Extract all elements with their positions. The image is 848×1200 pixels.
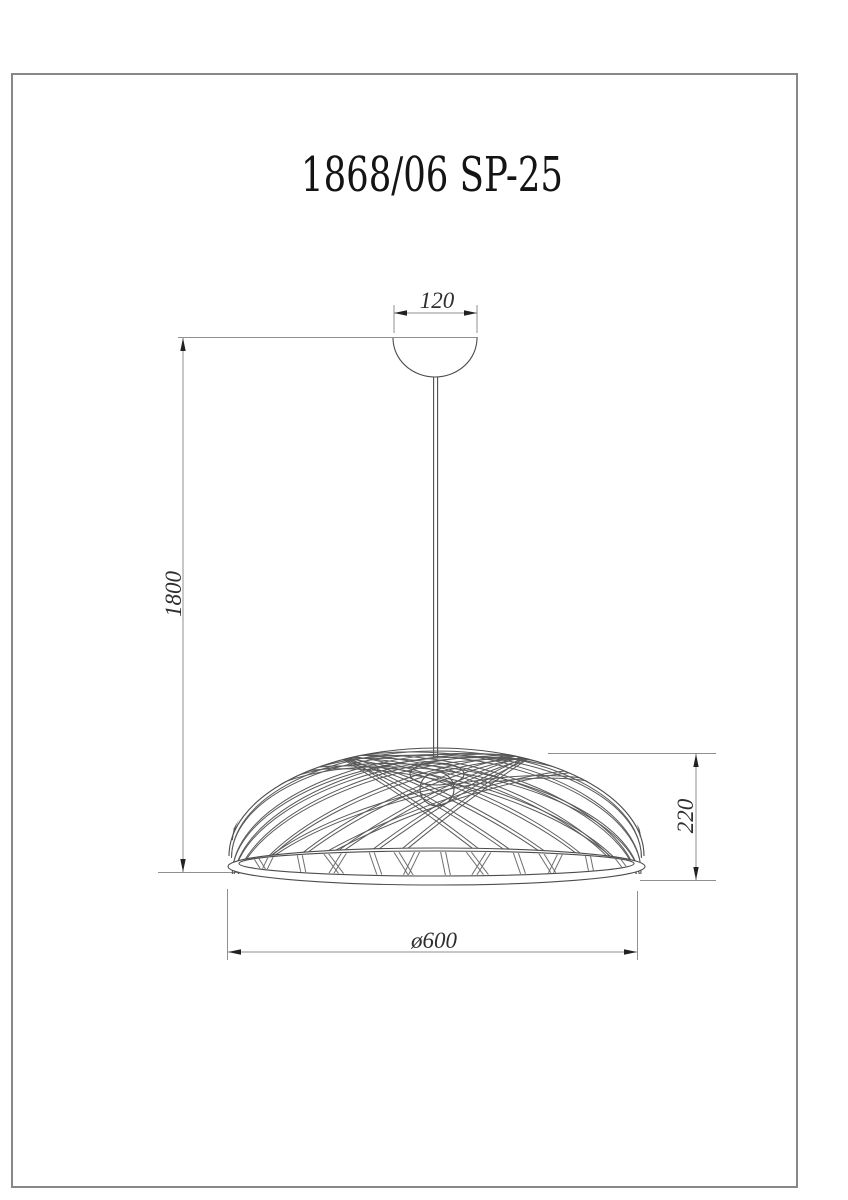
pendant-lamp — [215, 338, 658, 987]
arrow-left-icon — [394, 310, 407, 315]
arrow-down-icon — [693, 867, 698, 880]
shade-rim-outer — [228, 848, 645, 885]
ceiling-canopy — [393, 338, 477, 377]
arrow-up-icon — [180, 338, 185, 351]
dimension-label-cord-drop: 1800 — [161, 571, 186, 618]
arrow-right-icon — [464, 310, 477, 315]
dimension-label-shade-height: 220 — [673, 798, 698, 833]
arrow-left-icon — [228, 949, 241, 954]
arrow-right-icon — [624, 949, 637, 954]
suspension-cord — [434, 377, 438, 757]
technical-drawing: 1868/06 SP-25 120 1800 220 ø600 — [0, 0, 848, 1200]
arrow-down-icon — [180, 859, 185, 872]
dimension-label-canopy-width: 120 — [420, 288, 455, 313]
spec-sheet-page: 1868/06 SP-25 120 1800 220 ø600 — [0, 0, 848, 1200]
arrow-up-icon — [693, 754, 698, 767]
page-border — [12, 74, 797, 1187]
dimension-label-shade-diameter: ø600 — [410, 928, 458, 953]
drawing-title: 1868/06 SP-25 — [301, 147, 563, 203]
